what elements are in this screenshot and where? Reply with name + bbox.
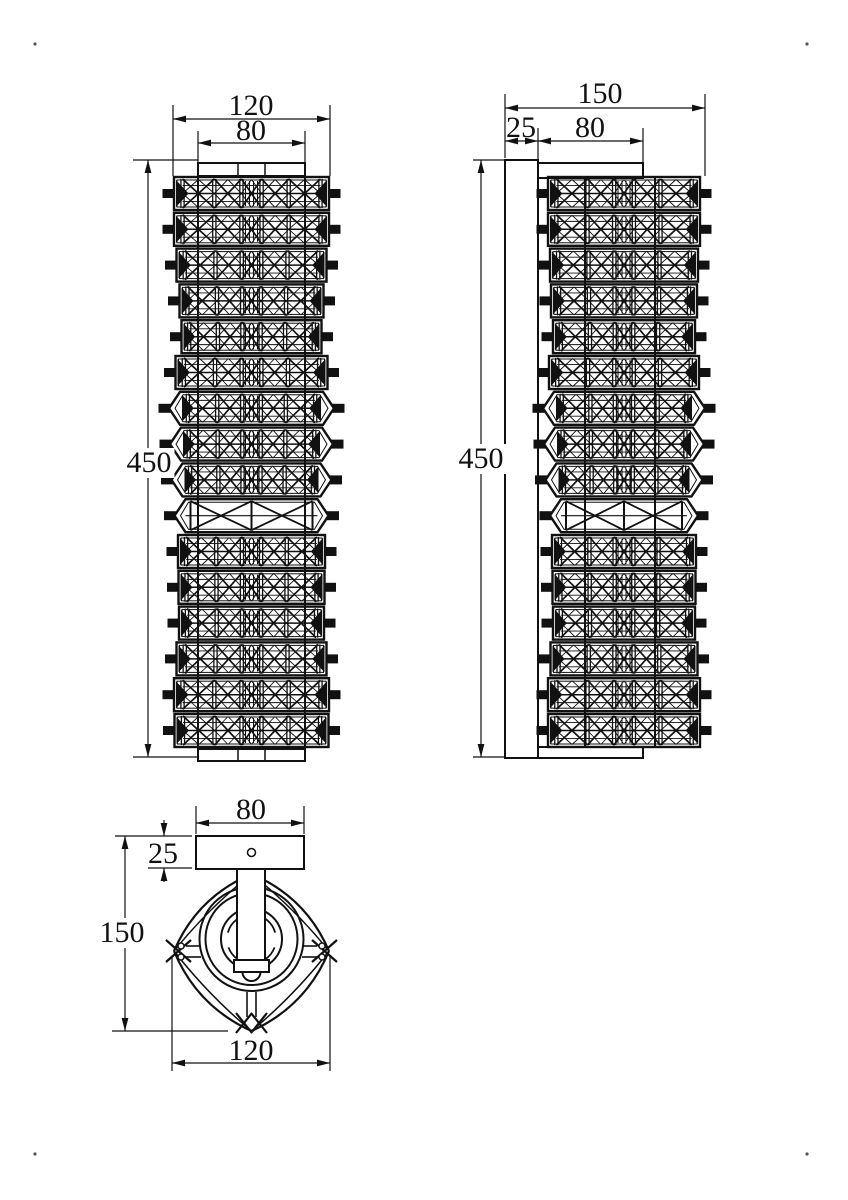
side-overall-depth-label: 150 [578, 79, 623, 109]
side-height-label: 450 [456, 444, 507, 474]
bottom-backplate-depth-label: 25 [148, 839, 178, 869]
front-view [133, 105, 344, 761]
bottom-overall-depth-label: 150 [97, 918, 148, 948]
front-height-label: 450 [124, 448, 175, 478]
bottom-backplate-width-label: 80 [236, 795, 266, 825]
technical-drawing-canvas: 120 80 450 150 25 80 450 80 25 150 120 [0, 0, 848, 1200]
bottom-body-width-label: 120 [229, 1036, 274, 1066]
corner-mark [33, 1152, 36, 1155]
corner-mark [33, 42, 36, 45]
wall-lamp-dimension-drawing [0, 0, 848, 1200]
side-arm-length-label: 80 [575, 113, 605, 143]
front-inner-width-label: 80 [236, 116, 266, 146]
corner-mark [805, 1152, 808, 1155]
side-view [473, 94, 715, 758]
side-backplate-depth-label: 25 [506, 113, 536, 143]
corner-mark [805, 42, 808, 45]
